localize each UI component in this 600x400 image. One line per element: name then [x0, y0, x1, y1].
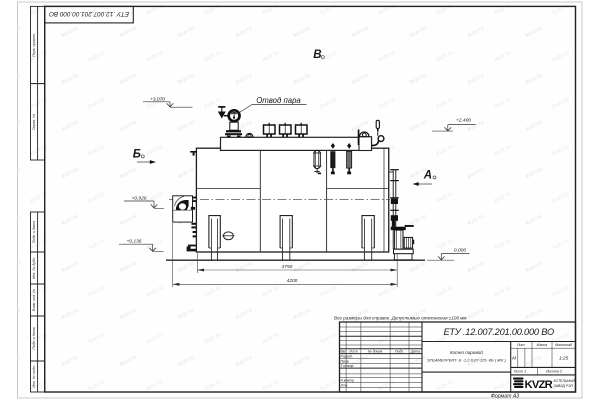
svg-text:ЗАВОД РЭП: ЗАВОД РЭП — [554, 384, 574, 388]
svg-text:Перв. примен.: Перв. примен. — [32, 33, 36, 57]
svg-text:Котел паровой: Котел паровой — [450, 349, 483, 355]
svg-text:Лист: Лист — [348, 350, 358, 354]
svg-text:Формат А3: Формат А3 — [491, 393, 519, 399]
svg-text:Подп.: Подп. — [395, 350, 404, 354]
svg-text:4200: 4200 — [287, 278, 298, 284]
svg-text:+3,070: +3,070 — [150, 96, 165, 102]
svg-text:Б: Б — [133, 149, 141, 161]
svg-text:М: М — [512, 356, 516, 361]
svg-text:3750: 3750 — [282, 264, 293, 270]
svg-text:Масштаб: Масштаб — [555, 343, 573, 347]
svg-text:Дата: Дата — [410, 350, 420, 354]
svg-text:Лист 1: Лист 1 — [513, 370, 526, 374]
svg-text:Т.контр.: Т.контр. — [341, 364, 355, 368]
svg-text:Пров.: Пров. — [341, 359, 350, 363]
svg-text:Взам. инв. №: Взам. инв. № — [32, 289, 36, 311]
svg-text:Подп. и дата: Подп. и дата — [32, 221, 36, 244]
svg-text:Листов 2: Листов 2 — [545, 370, 562, 374]
svg-text:Справ. №: Справ. № — [32, 114, 36, 130]
svg-text:1:25: 1:25 — [559, 356, 569, 362]
svg-text:Разраб.: Разраб. — [341, 355, 353, 359]
svg-text:+0,136: +0,136 — [126, 239, 141, 245]
svg-text:STEAMEXPERT- Е -1,2-0,07-115-: STEAMEXPERT- Е -1,2-0,07-115- КБ ( ЖК ) — [427, 358, 506, 363]
svg-text:+2,400: +2,400 — [456, 118, 471, 124]
svg-text:ЕТУ .12.007.201.00.000 ВО: ЕТУ .12.007.201.00.000 ВО — [49, 10, 129, 17]
svg-text:А: А — [423, 169, 432, 181]
svg-text:Инв. № дубл.: Инв. № дубл. — [32, 257, 36, 279]
svg-text:Изм.: Изм. — [339, 350, 346, 354]
svg-text:В: В — [313, 49, 321, 61]
svg-text:Все размеры для справок. Допу: Все размеры для справок. Допустимые откл… — [334, 316, 467, 321]
svg-text:ЕТУ .12.007.201.00.000 ВО: ЕТУ .12.007.201.00.000 ВО — [443, 327, 554, 337]
svg-text:0,000: 0,000 — [454, 248, 467, 254]
svg-text:№ докум.: № докум. — [368, 350, 383, 354]
svg-text:KVZR: KVZR — [525, 379, 553, 391]
svg-text:КОТЕЛЬНЫЙ: КОТЕЛЬНЫЙ — [554, 379, 576, 383]
svg-text:Отвод пара: Отвод пара — [256, 96, 301, 105]
svg-text:Масса: Масса — [537, 343, 548, 347]
svg-text:Утв.: Утв. — [341, 383, 349, 387]
svg-text:Подп. и дата: Подп. и дата — [32, 327, 36, 350]
svg-text:Н.контр.: Н.контр. — [341, 379, 355, 383]
svg-text:Инв. № подл.: Инв. № подл. — [32, 365, 36, 387]
svg-text:Лит.: Лит. — [516, 343, 525, 347]
